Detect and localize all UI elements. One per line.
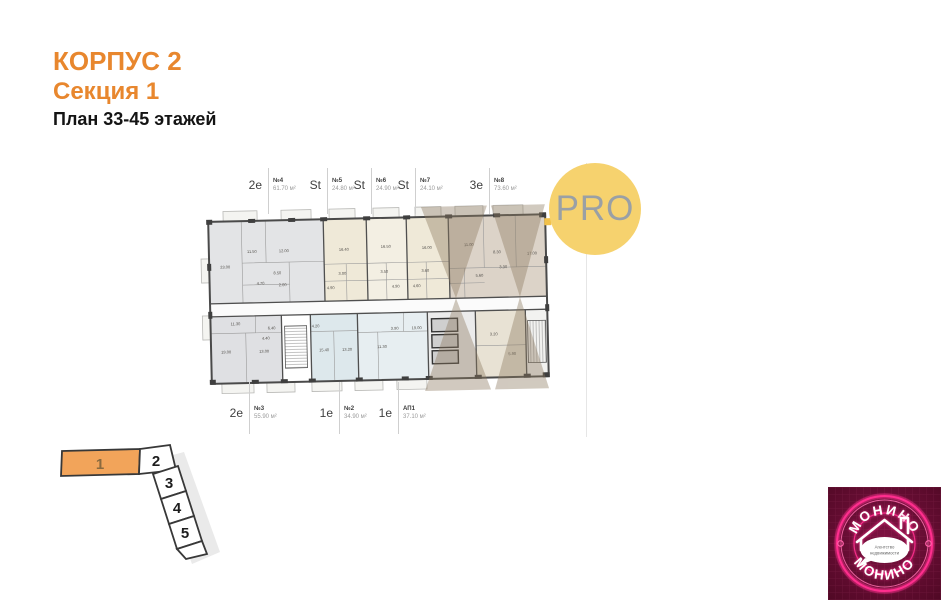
room-area-label: 11.30: [231, 321, 242, 326]
leader-line: [415, 168, 416, 214]
room-area-label: 4.70: [257, 281, 266, 286]
unit-number: №4: [273, 178, 296, 186]
section-3-label: 3: [165, 475, 173, 492]
unit-type: St: [354, 178, 365, 192]
room-area-label: 3.30: [499, 264, 508, 269]
unit-type: St: [398, 178, 409, 192]
unit-type: 1е: [320, 406, 333, 420]
header: КОРПУС 2 Секция 1 План 33-45 этажей: [53, 46, 216, 131]
leader-line: [398, 382, 399, 434]
room-area-label: 3.00: [338, 271, 347, 276]
leader-line: [489, 168, 490, 214]
unit-info: №6 24.90 м²: [376, 178, 399, 194]
room-area-label: 5.60: [476, 273, 485, 278]
unit-type: 3е: [470, 178, 483, 192]
room-area-label: 13.00: [259, 349, 270, 354]
section-key: 1 2 3 4 5: [50, 440, 220, 570]
section-1-label: 1: [96, 456, 104, 473]
room-area-label: 8.30: [493, 249, 502, 254]
unit-number: №5: [332, 178, 355, 186]
room-area-label: 3.90: [391, 326, 400, 331]
room-area-label: 4.90: [392, 284, 401, 289]
room-area-label: 4.20: [312, 323, 321, 328]
section-5-label: 5: [181, 525, 189, 542]
room-area-label: 16.50: [381, 244, 392, 249]
pro-badge-label: PRO: [556, 189, 635, 229]
room-area-label: 11.30: [377, 344, 388, 349]
plan-subtitle: План 33-45 этажей: [53, 107, 216, 131]
room-area-label: 13.20: [342, 347, 353, 352]
staircase-left: [285, 326, 308, 368]
unit-area: 34.90 м²: [344, 414, 367, 422]
room-area-label: 15.40: [319, 347, 330, 352]
room-area-label: 19.00: [221, 349, 232, 354]
room-area-label: 3.20: [490, 331, 499, 336]
unit-info: №2 34.90 м²: [344, 406, 367, 422]
unit-number: №8: [494, 178, 517, 186]
unit-area: 24.80 м²: [332, 186, 355, 194]
room-area-label: 16.40: [339, 247, 350, 252]
unit-area: 37.10 м²: [403, 414, 426, 422]
room-area-label: 12.00: [279, 248, 290, 253]
unit-number: АП1: [403, 406, 426, 414]
room-area-label: 23.00: [220, 264, 231, 269]
unit-type: 1е: [379, 406, 392, 420]
room-area-label: 6.40: [268, 325, 277, 330]
unit-number: №7: [420, 178, 443, 186]
unit-area: 61.70 м²: [273, 186, 296, 194]
leader-line: [339, 382, 340, 434]
room-area-label: 8.50: [273, 270, 282, 275]
leader-line: [371, 168, 372, 214]
room-area-label: 16.00: [422, 245, 433, 250]
bubble-line2: недвижимости: [870, 551, 900, 556]
pro-badge: PRO: [549, 163, 641, 255]
apartment-6-area: [366, 217, 408, 300]
room-area-label: 19.00: [412, 325, 423, 330]
bubble-line1: Агентство: [875, 545, 895, 550]
page: КОРПУС 2 Секция 1 План 33-45 этажей: [0, 0, 941, 600]
room-area-label: 3.50: [380, 269, 389, 274]
unit-info: №3 55.90 м²: [254, 406, 277, 422]
apartment-1-area: [357, 312, 429, 381]
unit-info: №5 24.80 м²: [332, 178, 355, 194]
unit-area: 73.60 м²: [494, 186, 517, 194]
building-title: КОРПУС 2: [53, 46, 216, 77]
section-4-label: 4: [173, 500, 182, 517]
unit-info: №4 61.70 м²: [273, 178, 296, 194]
unit-type: St: [310, 178, 321, 192]
unit-number: №6: [376, 178, 399, 186]
unit-number: №3: [254, 406, 277, 414]
leader-line: [249, 382, 250, 434]
room-area-label: 4.40: [262, 335, 271, 340]
room-area-label: 4.60: [413, 283, 422, 288]
agency-logo: МОНИНО МОНИНО Агентство недвижимости: [828, 487, 941, 600]
unit-area: 24.10 м²: [420, 186, 443, 194]
unit-area: 24.90 м²: [376, 186, 399, 194]
room-area-label: 2.00: [279, 282, 288, 287]
unit-type: 2е: [230, 406, 243, 420]
section-title: Секция 1: [53, 77, 216, 107]
unit-number: №2: [344, 406, 367, 414]
building: 23.0011.5012.008.504.702.0016.403.004.90…: [200, 204, 555, 396]
unit-info: №8 73.60 м²: [494, 178, 517, 194]
room-area-label: 3.60: [421, 268, 430, 273]
unit-info: №7 24.10 м²: [420, 178, 443, 194]
room-area-label: 11.50: [247, 249, 258, 254]
unit-area: 55.90 м²: [254, 414, 277, 422]
leader-line: [327, 168, 328, 214]
room-area-label: 4.90: [327, 285, 336, 290]
section-2-label: 2: [152, 453, 160, 470]
leader-line: [268, 168, 269, 214]
unit-type: 2е: [249, 178, 262, 192]
unit-info: АП1 37.10 м²: [403, 406, 426, 422]
